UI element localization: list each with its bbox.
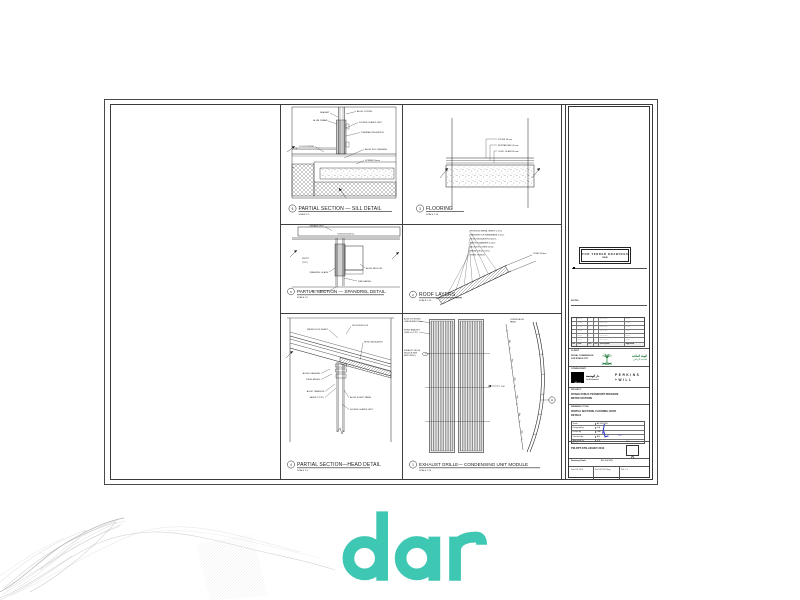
svg-text:SCALE 1:10: SCALE 1:10 xyxy=(419,299,432,302)
drawing-scale-value: AS SHOWN xyxy=(601,460,613,462)
svg-text:ROOF LAYERS: ROOF LAYERS xyxy=(419,292,456,298)
bottom-plot: Plot 1 : 1 xyxy=(621,469,628,471)
svg-text:ALUM. FRAME: ALUM. FRAME xyxy=(313,119,328,122)
svg-text:300: 300 xyxy=(509,340,512,343)
panel-head-drawing: METAL ROOF SHEET ROOF BUILD-UP RIGID INS… xyxy=(280,314,402,481)
svg-text:RIGID INSULATION 100mm: RIGID INSULATION 100mm xyxy=(470,237,496,240)
svg-text:PANEL: PANEL xyxy=(510,321,516,324)
title-block: FOR TENDER DRAWINGS ISSUE NOTES ---.--.-… xyxy=(568,106,650,478)
svg-text:MEP DWGS.): MEP DWGS.) xyxy=(404,355,416,357)
exhaust-geometry xyxy=(419,320,555,453)
svg-text:METAL ROOF SHEET: METAL ROOF SHEET xyxy=(307,328,329,331)
svg-text:OVAL BLADES 50mm: OVAL BLADES 50mm xyxy=(404,320,423,323)
client-name-ar-2: لمدينة الرياض xyxy=(615,358,647,361)
svg-text:FIRE SAFING: FIRE SAFING xyxy=(358,280,371,283)
panel-title-flooring: 3 FLOORING SCALE 1:10 xyxy=(416,205,464,216)
panel-title-spandrel: 5 PARTIAL SECTION — SPANDREL DETAIL SCAL… xyxy=(288,288,387,299)
dar-arabic-text: دار الهندسة xyxy=(586,374,599,378)
panel-title-sill: 6 PARTIAL SECTION — SILL DETAIL SCALE 1:… xyxy=(289,205,392,216)
svg-text:CURVED ALUM.: CURVED ALUM. xyxy=(510,318,525,321)
svg-text:3: 3 xyxy=(419,207,421,211)
svg-text:300: 300 xyxy=(519,413,522,416)
svg-text:FLOORING: FLOORING xyxy=(426,206,453,212)
svg-text:CURB 150mm: CURB 150mm xyxy=(533,253,547,255)
revision-table: ---.--.---------- --- ------- ------.--.… xyxy=(571,317,645,347)
svg-text:ALUM. TRANSOM: ALUM. TRANSOM xyxy=(307,390,325,393)
svg-text:SCALE 1:20: SCALE 1:20 xyxy=(419,469,432,472)
dar-logo xyxy=(328,504,498,599)
svg-text:CONC. SLAB 200 mm: CONC. SLAB 200 mm xyxy=(498,150,519,153)
dwg-no-label: DWG. No. xyxy=(571,443,579,445)
svg-text:EXHAUST GRILLE— CONDENSING UN: EXHAUST GRILLE— CONDENSING UNIT MODULE xyxy=(419,462,528,467)
panel-exhaust-drawing: ALUM. EXTRUDED OVAL BLADES 50mm FIXING B… xyxy=(402,314,561,481)
svg-text:STEEL ANGLE: STEEL ANGLE xyxy=(306,378,321,381)
rev-label: REV. xyxy=(626,442,630,443)
band-dimension-text: 10X150X1200mm. xyxy=(337,233,355,235)
svg-text:CERAMIC FRIT: CERAMIC FRIT xyxy=(309,225,325,228)
svg-text:ACOUSTIC LINER 25mm: ACOUSTIC LINER 25mm xyxy=(470,245,494,248)
perkins-will-line1: PERKINS xyxy=(615,373,640,377)
panel-title-exhaust: 1 EXHAUST GRILLE— CONDENSING UNIT MODULE… xyxy=(409,461,540,472)
section-tag: A xyxy=(551,398,553,402)
svg-text:SCALE 1:5: SCALE 1:5 xyxy=(297,469,309,472)
bottom-file: File DET-2012.dwg xyxy=(595,469,610,471)
perkins-will-line2: +WILL xyxy=(615,378,633,382)
drawing-title-line1: PARTIAL SECTIONS, FLOORING, ROOF xyxy=(571,410,616,413)
dar-wordmark xyxy=(348,511,481,580)
svg-text:MORTAR BED 30 mm: MORTAR BED 30 mm xyxy=(498,144,519,147)
svg-text:600: 600 xyxy=(517,395,520,398)
flooring-geometry xyxy=(440,118,540,208)
consultant-label: CONSULTANT xyxy=(571,368,586,370)
svg-text:SCREED 50mm: SCREED 50mm xyxy=(365,160,380,162)
divider-v4 xyxy=(565,105,566,480)
dar-latin-text: Dar Al-Handasah xyxy=(586,379,599,381)
svg-text:(TYP.): (TYP.) xyxy=(302,262,308,264)
stamp-line2: ISSUE xyxy=(582,257,628,259)
notes-label: NOTES xyxy=(571,300,579,302)
sill-geometry xyxy=(287,107,396,198)
svg-text:4: 4 xyxy=(290,463,292,467)
svg-text:PARTIAL SECTION—HEAD DETAIL: PARTIAL SECTION—HEAD DETAIL xyxy=(297,462,381,468)
svg-text:5: 5 xyxy=(290,290,292,294)
panel-scale-text: SCALE 1:5 xyxy=(299,213,311,216)
svg-text:SCALE 1:10: SCALE 1:10 xyxy=(426,213,439,216)
svg-text:THERMAL INSULATION: THERMAL INSULATION xyxy=(361,131,384,134)
dar-logo-box: dar xyxy=(571,372,584,383)
client-name-en-1: ROYAL COMMISSION xyxy=(571,355,593,357)
drawing-scale-label: Drawing Scale xyxy=(571,460,586,462)
flooring-annotations: STONE 30 mm MORTAR BED 30 mm CONC. SLAB … xyxy=(498,139,519,153)
svg-text:WATERPROOF MEMBRANE 1.5mm: WATERPROOF MEMBRANE 1.5mm xyxy=(470,233,504,236)
panel-title-roof: 2 ROOF LAYERS SCALE 1:10 xyxy=(410,291,462,302)
panel-spandrel-drawing: 10X150X1200mm. CERAMIC FRIT M FRIT (TYP.… xyxy=(280,224,402,314)
svg-text:ALUM. FLASHING: ALUM. FLASHING xyxy=(303,372,321,375)
svg-text:2: 2 xyxy=(412,293,414,297)
svg-text:@600 c/c (TYP.): @600 c/c (TYP.) xyxy=(404,332,418,334)
svg-text:ALUM. EXTRUDED: ALUM. EXTRUDED xyxy=(404,318,421,321)
svg-text:FIXING BRACKET: FIXING BRACKET xyxy=(404,329,421,332)
project-line2: METRO STATIONS xyxy=(571,397,592,400)
stamp-line1: FOR TENDER DRAWINGS xyxy=(582,253,628,256)
panel-title-text: PARTIAL SECTION — SILL DETAIL xyxy=(299,206,382,212)
stamp-box: FOR TENDER DRAWINGS ISSUE xyxy=(579,247,631,264)
svg-text:STEEL PURLIN: STEEL PURLIN xyxy=(470,254,485,256)
svg-text:GASKET (TYP.): GASKET (TYP.) xyxy=(309,396,324,399)
grid-bubble-8: 8 xyxy=(296,147,298,149)
svg-text:ROOF BUILD-UP: ROOF BUILD-UP xyxy=(352,325,369,327)
svg-text:6: 6 xyxy=(292,207,294,211)
svg-text:FLOOR FINISH: FLOOR FINISH xyxy=(299,146,314,148)
svg-text:PARTIAL SECTION — SPANDREL D: PARTIAL SECTION — SPANDREL DETAIL xyxy=(297,289,386,294)
drawing-title-label: DRAWING TITLE xyxy=(571,406,589,408)
client-name-ar-1: الهيئة الملكية xyxy=(615,354,647,358)
head-geometry xyxy=(286,318,394,442)
client-name-en-2: FOR RIYADH CITY xyxy=(571,358,588,360)
svg-text:ALUM. SILL FLASHING: ALUM. SILL FLASHING xyxy=(365,148,387,151)
svg-text:300: 300 xyxy=(514,378,517,381)
svg-text:EXHAUST GRILLE: EXHAUST GRILLE xyxy=(404,349,421,352)
blue-note: 100 xyxy=(618,435,621,437)
svg-text:ALUM. SOFFIT PANEL: ALUM. SOFFIT PANEL xyxy=(350,396,372,399)
svg-text:METAL DECK 0.9mm: METAL DECK 0.9mm xyxy=(470,249,490,252)
svg-text:SCALE 1:5: SCALE 1:5 xyxy=(297,296,309,299)
svg-text:STONE 30 mm: STONE 30 mm xyxy=(498,139,512,141)
panel-sill-drawing: SEALANT ALUM. FRAME ALUM. COPING DOUBLE … xyxy=(280,102,402,224)
rev-box: 0 xyxy=(626,445,639,456)
panel-title-head: 4 PARTIAL SECTION—HEAD DETAIL SCALE 1:5 xyxy=(287,461,381,472)
wave-art xyxy=(0,492,345,600)
svg-text:ALUM. COPING: ALUM. COPING xyxy=(357,110,373,113)
svg-text:DOUBLE GLAZED UNIT: DOUBLE GLAZED UNIT xyxy=(359,121,383,124)
page-canvas: SEALANT ALUM. FRAME ALUM. COPING DOUBLE … xyxy=(0,0,800,600)
bottom-date: Date JUL 2016 xyxy=(571,469,583,471)
drawing-title-line2: DETAILS xyxy=(571,414,581,417)
panel-flooring-drawing: STONE 30 mm MORTAR BED 30 mm CONC. SLAB … xyxy=(402,102,561,224)
svg-text:1: 1 xyxy=(412,463,414,467)
svg-text:SPANDREL GLASS: SPANDREL GLASS xyxy=(310,271,329,274)
project-label: PROJECT xyxy=(571,389,582,391)
svg-text:300: 300 xyxy=(521,431,524,434)
wave-strokes xyxy=(0,518,335,600)
roof-annotations: PROFILED METAL SHEET 0.7mm WATERPROOF ME… xyxy=(470,229,547,256)
svg-text:PROFILED METAL SHEET 0.7mm: PROFILED METAL SHEET 0.7mm xyxy=(470,229,502,232)
svg-text:300: 300 xyxy=(512,359,515,362)
svg-text:RIGID INSULATION: RIGID INSULATION xyxy=(364,341,383,344)
svg-text:ALUM. MULLION: ALUM. MULLION xyxy=(366,267,383,270)
dwg-number: PW-RPT-STN-AR-DET-2012 xyxy=(571,447,604,450)
client-emblem-palm-icon xyxy=(601,352,613,366)
dim-150: 150 xyxy=(501,386,505,388)
svg-text:DOUBLE GLAZED UNIT: DOUBLE GLAZED UNIT xyxy=(350,408,374,411)
frit-label: M FRIT xyxy=(302,258,310,260)
project-line1: RIYADH PUBLIC TRANSPORT PROGRAM xyxy=(571,393,618,396)
svg-text:SEALANT: SEALANT xyxy=(320,111,330,114)
divider-v3 xyxy=(561,105,562,480)
panel-roof-drawing: PROFILED METAL SHEET 0.7mm WATERPROOF ME… xyxy=(402,224,561,314)
client-label: CLIENT xyxy=(571,350,579,352)
svg-text:VAPOUR BARRIER 0.2mm: VAPOUR BARRIER 0.2mm xyxy=(470,241,496,244)
